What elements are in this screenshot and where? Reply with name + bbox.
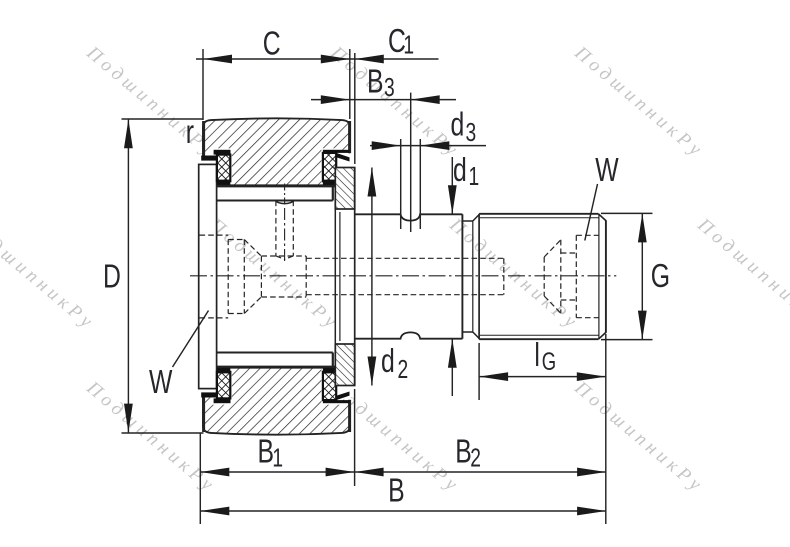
svg-text:1: 1 [469,161,480,191]
svg-text:d: d [381,343,395,381]
svg-text:B: B [367,63,384,101]
svg-text:C: C [263,25,281,63]
svg-text:W: W [149,363,173,401]
svg-text:r: r [186,113,194,151]
svg-text:2: 2 [470,443,481,473]
svg-text:d: d [451,106,465,144]
svg-text:G: G [542,347,556,375]
svg-text:1: 1 [403,30,414,60]
svg-text:3: 3 [466,117,477,147]
svg-text:W: W [595,151,619,189]
svg-text:B: B [455,433,472,471]
svg-text:1: 1 [272,443,283,473]
svg-text:B: B [388,472,405,510]
svg-text:B: B [258,433,275,471]
svg-text:d: d [453,151,467,189]
svg-text:2: 2 [398,354,409,384]
svg-text:3: 3 [384,72,395,102]
svg-text:G: G [651,258,670,296]
svg-text:l: l [534,336,540,374]
svg-text:D: D [103,258,121,296]
